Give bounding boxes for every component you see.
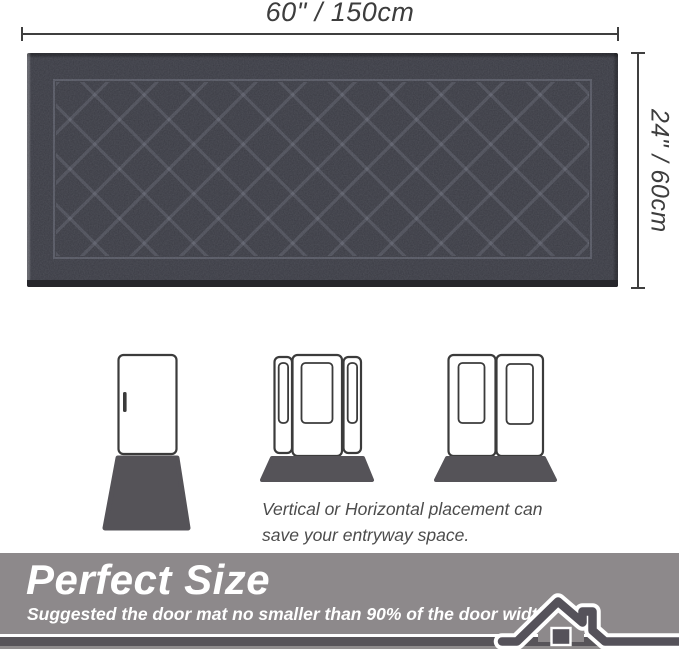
mat-bottom-edge <box>27 280 618 287</box>
double-door-horizontal-mat-icon <box>436 355 555 480</box>
height-dimension-tick-top <box>631 52 645 54</box>
placement-caption-line2: save your entryway space. <box>262 522 592 548</box>
height-dimension-tick-bottom <box>631 287 645 289</box>
door-mat-image <box>27 53 618 287</box>
placement-caption: Vertical or Horizontal placement can sav… <box>262 496 592 548</box>
door-handle-icon <box>123 392 127 412</box>
vertical-mat-shape <box>105 458 188 528</box>
banner-subtitle: Suggested the door mat no smaller than 9… <box>27 604 553 625</box>
mat-edge-shading <box>27 53 618 287</box>
horizontal-mat-shape <box>262 458 372 480</box>
height-dimension-label: 24" / 60cm <box>642 95 676 247</box>
house-door-icon <box>552 628 571 645</box>
width-dimension-label: 60" / 150cm <box>60 0 620 29</box>
sidelight-door-horizontal-mat-icon <box>262 355 372 480</box>
house-roof-icon <box>480 570 679 649</box>
product-infographic: 60" / 150cm 24" / 60cm <box>0 0 679 649</box>
height-dimension-line <box>637 53 639 289</box>
width-dimension-tick-right <box>617 27 619 41</box>
width-dimension-line <box>22 33 618 35</box>
banner-title: Perfect Size <box>26 556 270 604</box>
horizontal-mat-shape <box>436 458 555 480</box>
single-door-vertical-mat-icon <box>105 355 188 528</box>
width-dimension-tick-left <box>21 27 23 41</box>
placement-caption-line1: Vertical or Horizontal placement can <box>262 496 592 522</box>
